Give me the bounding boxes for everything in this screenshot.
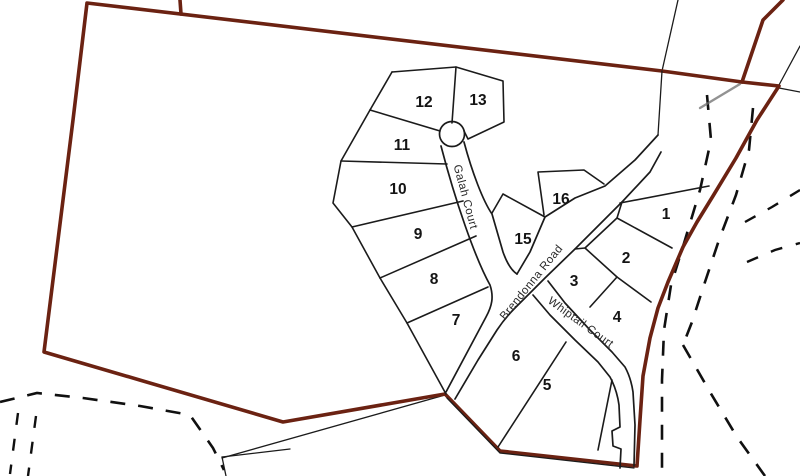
lot-label-7: 7 — [452, 312, 461, 329]
map-canvas: Galah Court Brendonna Road Whiptail Cour… — [0, 0, 800, 476]
dashed-track-right-inner — [662, 95, 711, 476]
lot-labels: 1 2 3 4 5 6 7 8 9 10 11 12 13 15 16 — [389, 92, 670, 394]
brendonna-road-nw-edge — [517, 135, 658, 274]
dashed-track-bottom-left — [0, 393, 224, 476]
lot-label-13: 13 — [469, 92, 487, 109]
lot-label-6: 6 — [512, 348, 521, 365]
lot-label-10: 10 — [389, 181, 406, 198]
lot-label-11: 11 — [394, 137, 411, 154]
brendonna-road-throat — [658, 71, 662, 135]
lot-label-2: 2 — [622, 250, 631, 267]
context-lines — [222, 0, 800, 476]
lot-label-4: 4 — [613, 309, 622, 326]
subdivision-map: Galah Court Brendonna Road Whiptail Cour… — [0, 0, 800, 476]
road-lines — [440, 71, 663, 468]
lot-boundary-lines — [333, 67, 709, 450]
galah-court-culdesac-bulb — [440, 122, 465, 147]
lot-label-8: 8 — [430, 271, 439, 288]
lot-label-9: 9 — [414, 226, 423, 243]
lot-label-16: 16 — [552, 191, 570, 208]
lot-label-15: 15 — [514, 231, 532, 248]
lot-label-3: 3 — [570, 273, 579, 290]
dashed-track-right-outer — [683, 108, 765, 476]
dashed-branch-east — [745, 190, 800, 262]
street-label-whiptail-court: Whiptail Court — [545, 295, 615, 351]
lot-label-1: 1 — [662, 206, 671, 223]
lot-label-5: 5 — [543, 377, 552, 394]
lot-label-12: 12 — [415, 94, 432, 111]
